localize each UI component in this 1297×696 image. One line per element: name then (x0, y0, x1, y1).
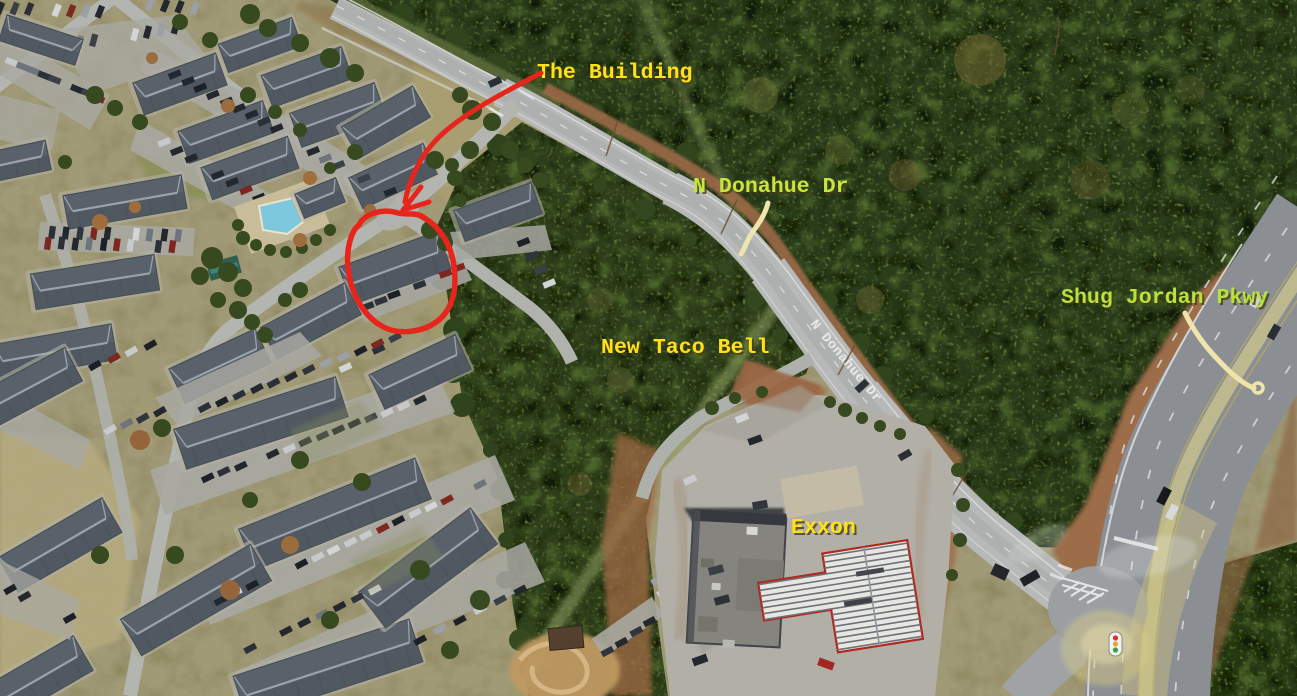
svg-text:Exxon: Exxon (791, 516, 856, 540)
svg-text:The Building: The Building (537, 61, 693, 85)
svg-text:Shug Jordan Pkwy: Shug Jordan Pkwy (1061, 286, 1268, 310)
svg-text:N Donahue Dr: N Donahue Dr (693, 175, 849, 199)
svg-text:New Taco Bell: New Taco Bell (601, 336, 770, 360)
